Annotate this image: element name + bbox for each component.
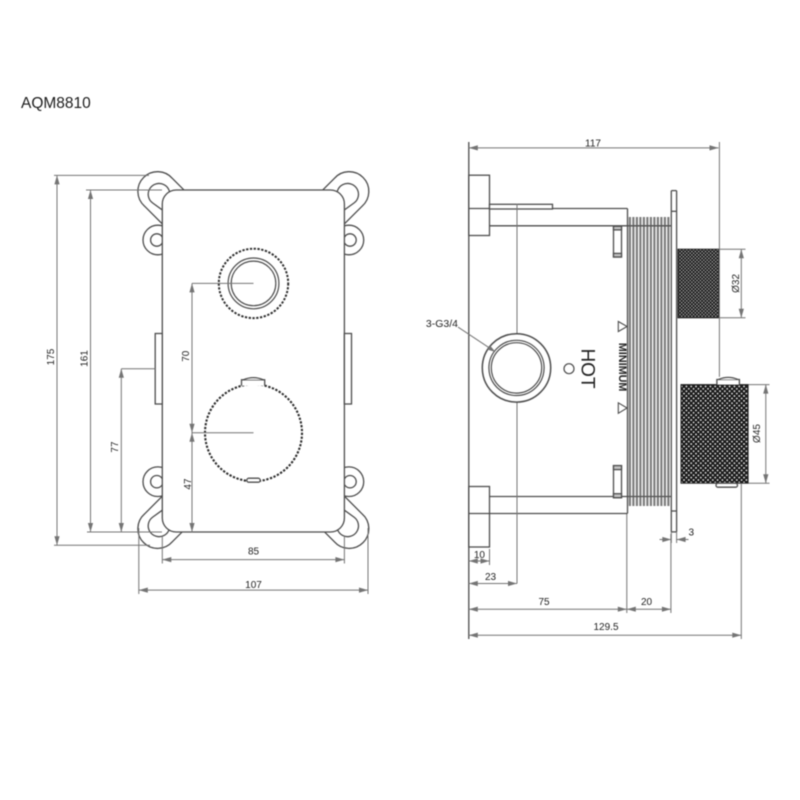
svg-text:3-G3/4: 3-G3/4 <box>426 318 458 330</box>
svg-text:161: 161 <box>80 350 91 367</box>
svg-text:107: 107 <box>245 580 262 591</box>
svg-text:Ø32: Ø32 <box>731 274 742 293</box>
svg-text:129.5: 129.5 <box>593 622 618 633</box>
svg-text:70: 70 <box>181 350 192 362</box>
svg-text:20: 20 <box>641 597 653 608</box>
svg-text:175: 175 <box>46 348 57 365</box>
svg-text:23: 23 <box>485 572 497 583</box>
svg-text:117: 117 <box>585 138 601 149</box>
svg-text:HOT: HOT <box>577 348 598 389</box>
svg-text:47: 47 <box>183 478 194 490</box>
svg-text:75: 75 <box>538 597 550 608</box>
svg-text:85: 85 <box>248 546 260 557</box>
svg-text:77: 77 <box>110 441 121 453</box>
svg-text:MINIMUM: MINIMUM <box>616 343 628 392</box>
svg-text:10: 10 <box>474 550 486 561</box>
svg-text:AQM8810: AQM8810 <box>21 95 91 112</box>
svg-text:Ø45: Ø45 <box>752 424 763 443</box>
svg-text:3: 3 <box>689 528 695 539</box>
